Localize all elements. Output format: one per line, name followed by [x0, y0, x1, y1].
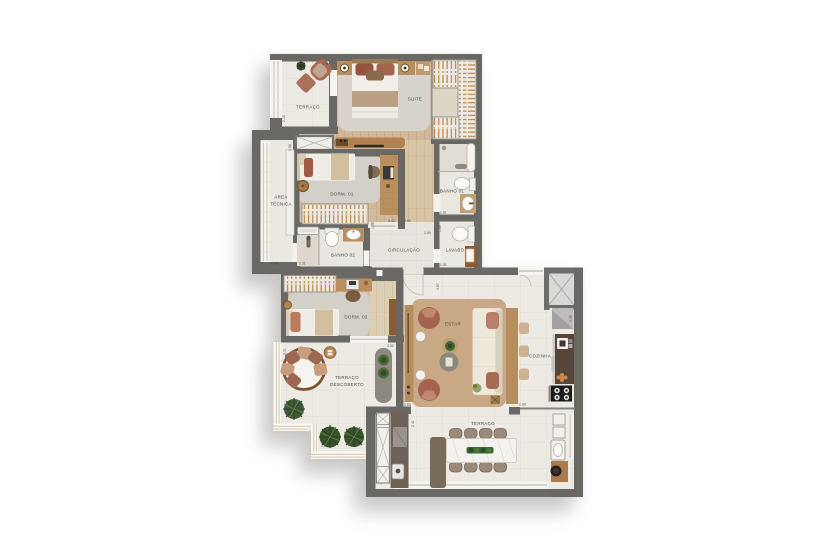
svg-text:ÁREA: ÁREA: [274, 195, 287, 200]
svg-text:2.31: 2.31: [299, 262, 306, 266]
svg-text:BANHO 02: BANHO 02: [331, 253, 356, 258]
svg-text:3.43: 3.43: [388, 219, 395, 223]
svg-text:1.96: 1.96: [322, 62, 329, 66]
svg-text:SUITE: SUITE: [408, 97, 423, 102]
svg-text:DORM. 01: DORM. 01: [330, 192, 354, 197]
svg-text:2.35: 2.35: [282, 115, 286, 122]
svg-text:COZINHA: COZINHA: [529, 354, 551, 359]
svg-text:2.71: 2.71: [283, 348, 287, 355]
svg-text:DORM. 02: DORM. 02: [344, 315, 368, 320]
svg-text:0.76: 0.76: [271, 262, 278, 266]
svg-text:TERRAÇO: TERRAÇO: [335, 375, 359, 380]
svg-text:CIRCULAÇÃO: CIRCULAÇÃO: [388, 248, 420, 253]
svg-text:LAVABO: LAVABO: [446, 248, 465, 253]
svg-text:0.99: 0.99: [404, 219, 411, 223]
svg-text:1.61: 1.61: [321, 444, 328, 448]
svg-text:TÉCNICA: TÉCNICA: [270, 202, 292, 207]
svg-text:3.92: 3.92: [387, 344, 394, 348]
svg-text:2.09: 2.09: [424, 231, 431, 235]
svg-text:3.39: 3.39: [569, 315, 573, 322]
svg-text:4.67: 4.67: [436, 283, 440, 290]
svg-text:3.80: 3.80: [404, 403, 411, 407]
svg-text:1.31: 1.31: [440, 263, 447, 267]
svg-text:4.38: 4.38: [288, 144, 292, 151]
svg-text:2.41: 2.41: [411, 420, 415, 427]
svg-text:TERRAÇO: TERRAÇO: [296, 105, 320, 110]
svg-text:ESTAR: ESTAR: [445, 322, 461, 327]
svg-text:DESCOBERTO: DESCOBERTO: [330, 382, 364, 387]
svg-text:1.94: 1.94: [519, 403, 526, 407]
svg-text:BANHO 01: BANHO 01: [440, 189, 465, 194]
svg-text:1.60: 1.60: [438, 225, 442, 232]
svg-text:TERRAÇO: TERRAÇO: [471, 421, 495, 426]
svg-text:1.31: 1.31: [440, 211, 447, 215]
svg-text:1.58: 1.58: [371, 222, 375, 229]
